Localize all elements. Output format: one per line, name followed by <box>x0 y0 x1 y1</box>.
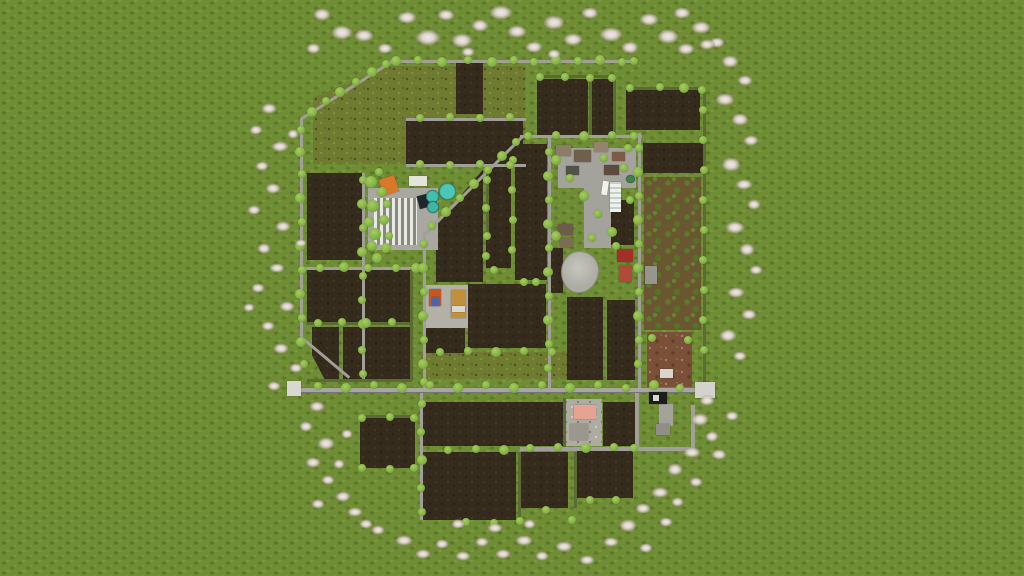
blossom-tree-cluster <box>475 537 489 547</box>
tree <box>377 187 387 197</box>
tree <box>520 278 528 286</box>
blossom-tree-cluster <box>705 431 719 442</box>
plowed-field <box>421 402 563 446</box>
tree <box>414 56 422 64</box>
tree <box>635 192 643 200</box>
blossom-tree-cluster <box>335 491 351 502</box>
blossom-tree-cluster <box>495 549 511 559</box>
tree <box>699 196 707 204</box>
blossom-tree-cluster <box>287 129 299 139</box>
blossom-tree-cluster <box>354 29 374 42</box>
tree <box>633 311 643 321</box>
tree <box>410 464 418 472</box>
blossom-tree-cluster <box>295 239 307 247</box>
blossom-tree-cluster <box>691 413 709 426</box>
hedgerow <box>703 90 706 388</box>
blossom-tree-cluster <box>371 525 385 535</box>
tree <box>574 57 582 65</box>
tree <box>397 383 407 393</box>
blossom-tree-cluster <box>251 283 265 293</box>
blossom-tree-cluster <box>579 555 595 565</box>
blossom-tree-cluster <box>299 421 313 432</box>
blossom-tree-cluster <box>321 475 335 485</box>
tree <box>298 170 306 178</box>
tree <box>607 227 617 237</box>
tree <box>314 382 322 390</box>
tree <box>622 384 630 392</box>
blossom-tree-cluster <box>275 221 291 232</box>
blossom-tree-cluster <box>603 537 619 547</box>
tree <box>554 443 562 451</box>
tree <box>298 218 306 226</box>
plowed-field <box>603 402 635 446</box>
hedgerow <box>613 79 616 135</box>
blossom-tree-cluster <box>719 329 737 342</box>
blossom-tree-cluster <box>437 9 455 21</box>
barn-a <box>556 145 571 156</box>
tree <box>530 58 538 66</box>
blossom-tree-cluster <box>639 13 659 26</box>
tree <box>630 132 638 140</box>
tree <box>649 380 659 390</box>
hedgerow <box>626 87 704 90</box>
tree <box>635 336 643 344</box>
blossom-tree-cluster <box>257 243 271 254</box>
tree <box>509 383 519 393</box>
tree <box>295 147 305 157</box>
tree <box>383 200 391 208</box>
tree <box>392 264 400 272</box>
blossom-tree-cluster <box>715 93 735 106</box>
tree <box>341 383 351 393</box>
hedgerow <box>589 79 592 135</box>
tree <box>295 193 305 203</box>
tree <box>538 381 546 389</box>
blossom-tree-cluster <box>699 39 715 50</box>
blossom-tree-cluster <box>415 549 431 559</box>
tree <box>298 314 306 322</box>
blossom-tree-cluster <box>555 541 573 552</box>
tree <box>656 83 664 91</box>
tree <box>630 57 638 65</box>
tree <box>543 219 553 229</box>
shop-blue-crate <box>432 297 439 306</box>
blossom-tree-cluster <box>563 33 583 46</box>
blossom-tree-cluster <box>733 351 747 361</box>
tree <box>512 138 520 146</box>
shop-shelves <box>451 290 466 318</box>
plowed-field <box>591 79 613 135</box>
tree <box>699 316 707 324</box>
tree <box>484 166 492 174</box>
tree <box>357 247 367 257</box>
game-map-viewport[interactable] <box>0 0 1024 576</box>
tree <box>542 506 550 514</box>
tree <box>594 210 602 218</box>
tree <box>296 337 306 347</box>
blossom-tree-cluster <box>279 301 295 312</box>
yard-pond <box>626 175 635 183</box>
tree <box>417 428 425 436</box>
tree <box>335 87 345 97</box>
blossom-tree-cluster <box>743 135 759 146</box>
tree <box>520 347 528 355</box>
tree <box>620 164 628 172</box>
tree <box>375 168 383 176</box>
hedgerow <box>537 75 615 78</box>
blossom-tree-cluster <box>261 321 275 331</box>
shed-d <box>560 238 573 247</box>
blossom-tree-cluster <box>671 497 684 507</box>
tree <box>600 154 608 162</box>
blossom-tree-cluster <box>397 11 417 24</box>
tree <box>648 334 656 342</box>
blossom-tree-cluster <box>261 103 277 114</box>
tree <box>367 200 379 212</box>
blossom-tree-cluster <box>243 303 255 312</box>
tree <box>676 384 684 392</box>
weighbridge-plate <box>653 395 659 401</box>
blossom-tree-cluster <box>269 263 285 273</box>
tree <box>483 176 491 184</box>
tree <box>446 113 454 121</box>
blossom-tree-cluster <box>535 551 549 561</box>
red-barn-2 <box>619 265 632 282</box>
blossom-tree-cluster <box>749 265 763 275</box>
blossom-tree-cluster <box>247 205 261 215</box>
blossom-tree-cluster <box>689 477 703 487</box>
blossom-tree-cluster <box>461 47 475 57</box>
blossom-tree-cluster <box>683 447 701 458</box>
greenhouse <box>610 182 621 212</box>
tree <box>372 253 382 263</box>
tree <box>381 243 391 253</box>
tree <box>359 370 367 378</box>
clutter-a <box>570 424 588 440</box>
blossom-tree-cluster <box>673 7 691 19</box>
plowed-field <box>307 173 363 260</box>
tree <box>506 113 514 121</box>
blossom-tree-cluster <box>289 363 303 373</box>
tree <box>436 348 444 356</box>
tree <box>358 296 366 304</box>
tree <box>565 383 575 393</box>
tree <box>586 496 594 504</box>
tree <box>635 240 643 248</box>
plowed-field <box>360 418 415 468</box>
orchard <box>644 177 701 330</box>
barn-d <box>612 152 625 161</box>
farm-map-canvas <box>0 0 1024 576</box>
tree <box>499 445 509 455</box>
tree <box>594 381 602 389</box>
tree <box>361 318 371 328</box>
gate-left <box>287 381 301 396</box>
tree <box>367 67 377 77</box>
tree <box>420 336 428 344</box>
small-shed <box>656 424 670 435</box>
gray-shed <box>645 266 657 284</box>
path-south <box>659 404 673 426</box>
tree <box>552 131 560 139</box>
tree <box>524 132 532 140</box>
plowed-field <box>520 452 568 508</box>
tree <box>418 311 428 321</box>
blossom-tree-cluster <box>543 15 565 30</box>
plowed-field <box>643 143 703 173</box>
blossom-tree-cluster <box>747 199 761 210</box>
tree <box>386 413 394 421</box>
tree <box>295 289 305 299</box>
tree <box>416 160 424 168</box>
hedgerow <box>307 379 412 382</box>
tree <box>508 186 516 194</box>
tree <box>476 160 484 168</box>
tree <box>418 359 428 369</box>
pond <box>561 251 599 293</box>
tree <box>579 131 589 141</box>
blossom-tree-cluster <box>599 27 623 42</box>
tree <box>545 196 553 204</box>
tree <box>352 78 360 86</box>
barn-c <box>594 142 608 152</box>
tree <box>476 114 484 122</box>
hedgerow <box>563 398 566 447</box>
tree <box>338 318 346 326</box>
blossom-tree-cluster <box>451 33 473 48</box>
shed-b <box>604 165 619 175</box>
tree <box>307 107 317 117</box>
tree <box>428 222 436 230</box>
tree <box>543 315 553 325</box>
blossom-tree-cluster <box>487 523 503 533</box>
tree <box>410 414 418 422</box>
blossom-tree-cluster <box>635 503 651 514</box>
blossom-tree-cluster <box>255 161 269 171</box>
tree <box>365 176 377 188</box>
tree <box>544 364 552 372</box>
tree <box>635 288 643 296</box>
tree <box>551 231 561 241</box>
plowed-field <box>423 325 465 353</box>
blossom-tree-cluster <box>341 429 353 439</box>
blossom-tree-cluster <box>699 395 715 406</box>
plowed-field <box>343 327 410 379</box>
tree <box>322 97 330 105</box>
tree <box>700 286 708 294</box>
tree <box>417 455 427 465</box>
tree <box>386 465 394 473</box>
tree <box>509 216 517 224</box>
tree <box>388 318 396 326</box>
tree <box>634 360 642 368</box>
plowed-field <box>468 284 546 348</box>
blossom-tree-cluster <box>415 29 441 46</box>
slurry-tank-2 <box>439 183 456 200</box>
blossom-tree-cluster <box>677 43 695 55</box>
blossom-tree-cluster <box>309 401 325 412</box>
tree <box>633 215 643 225</box>
tree <box>437 57 447 67</box>
tree <box>416 114 424 122</box>
tree <box>418 263 428 273</box>
tree <box>545 244 553 252</box>
tree <box>358 346 366 354</box>
tree <box>456 194 464 202</box>
road <box>635 393 639 449</box>
blossom-tree-cluster <box>435 539 449 549</box>
blossom-tree-cluster <box>725 221 745 234</box>
tree <box>626 84 634 92</box>
tree <box>633 263 643 273</box>
tree <box>510 56 518 64</box>
tree <box>358 464 366 472</box>
hedgerow <box>410 269 413 380</box>
tree <box>579 191 589 201</box>
blossom-tree-cluster <box>735 179 753 190</box>
blossom-tree-cluster <box>333 459 345 469</box>
blossom-tree-cluster <box>489 5 513 20</box>
tree <box>679 83 689 93</box>
tree <box>464 347 472 355</box>
tree <box>364 217 374 227</box>
blossom-tree-cluster <box>317 437 335 450</box>
shop-pallets <box>452 306 465 312</box>
tree <box>316 264 324 272</box>
tree <box>370 381 378 389</box>
blossom-tree-cluster <box>657 29 679 44</box>
tree <box>612 496 620 504</box>
tree <box>581 443 591 453</box>
tree <box>444 446 452 454</box>
plowed-field <box>567 297 603 380</box>
blossom-tree-cluster <box>265 183 281 194</box>
blossom-tree-cluster <box>547 49 561 59</box>
blossom-tree-cluster <box>377 43 393 54</box>
blossom-tree-cluster <box>651 487 669 498</box>
tree <box>359 272 367 280</box>
tree <box>391 56 401 66</box>
blossom-tree-cluster <box>515 535 533 546</box>
tree <box>339 262 349 272</box>
tree <box>551 155 561 165</box>
tree <box>491 347 501 357</box>
tree <box>566 174 574 182</box>
blossom-tree-cluster <box>741 309 757 320</box>
tree <box>635 144 643 152</box>
blossom-tree-cluster <box>249 125 263 135</box>
tree <box>532 278 540 286</box>
blossom-tree-cluster <box>739 243 755 256</box>
blossom-tree-cluster <box>471 19 489 32</box>
blossom-tree-cluster <box>659 517 673 527</box>
blossom-tree-cluster <box>525 41 543 53</box>
tree <box>612 242 620 250</box>
tree <box>608 74 616 82</box>
tree <box>314 319 322 327</box>
tree <box>700 346 708 354</box>
blossom-tree-cluster <box>273 343 289 354</box>
road <box>691 405 695 449</box>
blossom-tree-cluster <box>331 25 353 40</box>
tree <box>545 292 553 300</box>
plowed-field <box>456 62 483 114</box>
tree <box>548 348 556 356</box>
tree <box>699 136 707 144</box>
blossom-tree-cluster <box>311 499 325 509</box>
tree <box>369 228 381 240</box>
tree <box>699 256 707 264</box>
blossom-tree-cluster <box>731 113 749 126</box>
tree <box>441 207 451 217</box>
tree <box>464 56 472 64</box>
tree <box>700 226 708 234</box>
tree <box>588 234 596 242</box>
tree <box>483 232 491 240</box>
hedgerow <box>574 452 577 508</box>
slurry-tank-3 <box>427 201 439 213</box>
tree <box>624 144 632 152</box>
blossom-tree-cluster <box>711 449 727 460</box>
plowed-field <box>577 450 633 498</box>
blossom-tree-cluster <box>306 43 321 54</box>
tree <box>497 151 507 161</box>
tree <box>543 267 553 277</box>
tree <box>357 199 367 209</box>
tree <box>543 171 553 181</box>
tree <box>568 516 576 524</box>
barn-b <box>574 150 591 162</box>
blossom-tree-cluster <box>621 41 639 54</box>
tree <box>595 55 605 65</box>
tree <box>472 445 480 453</box>
blossom-tree-cluster <box>667 463 683 476</box>
tree <box>610 443 618 451</box>
tree <box>508 246 516 254</box>
blossom-tree-cluster <box>619 519 637 532</box>
hedgerow <box>518 452 521 520</box>
blossom-tree-cluster <box>737 75 753 86</box>
blossom-tree-cluster <box>639 543 653 553</box>
tree <box>545 148 553 156</box>
tree <box>633 167 643 177</box>
tree <box>482 204 490 212</box>
tent <box>660 369 673 378</box>
blossom-tree-cluster <box>691 21 711 34</box>
blossom-tree-cluster <box>271 141 289 152</box>
blossom-tree-cluster <box>395 535 413 546</box>
blossom-tree-cluster <box>581 7 599 19</box>
tree <box>420 288 428 296</box>
red-barn <box>617 249 633 262</box>
tree <box>367 241 377 251</box>
tree <box>506 161 514 169</box>
tree <box>526 444 534 452</box>
tree <box>364 264 372 272</box>
blossom-tree-cluster <box>721 55 739 68</box>
tree <box>684 336 692 344</box>
tree <box>561 73 569 81</box>
tree <box>618 58 626 66</box>
plowed-field <box>626 90 700 130</box>
tree <box>490 266 498 274</box>
tree <box>420 240 428 248</box>
blossom-tree-cluster <box>267 381 281 391</box>
blossom-tree-cluster <box>727 287 745 298</box>
plowed-field <box>537 79 588 135</box>
tree <box>385 232 393 240</box>
tree <box>545 340 553 348</box>
